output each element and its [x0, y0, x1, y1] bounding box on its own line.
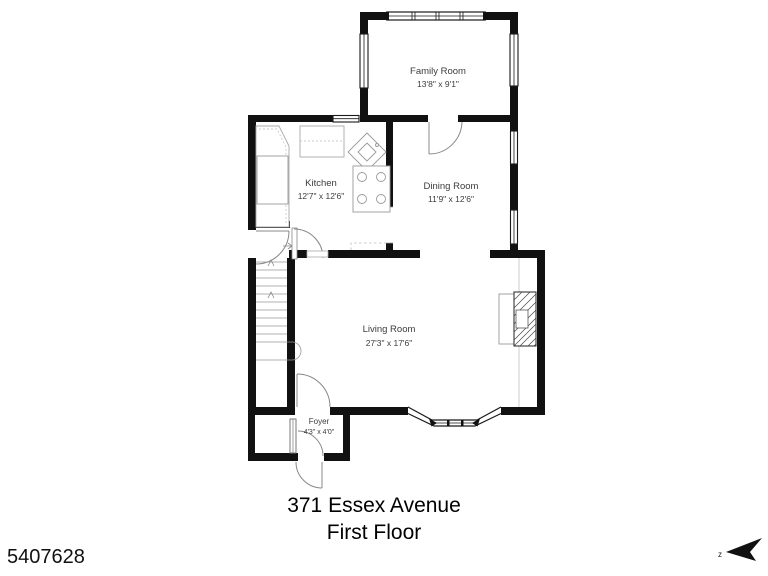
- family-room-left-window: [360, 34, 368, 88]
- family-room-label: Family Room: [410, 66, 466, 77]
- foyer-living-door: [297, 374, 330, 407]
- family-room-dims: 13'8" x 9'1": [417, 79, 459, 89]
- kitchen-cabinet: [300, 126, 344, 157]
- front-door: [296, 431, 323, 488]
- floor-line: First Floor: [0, 519, 748, 546]
- kitchen-window: [333, 116, 359, 123]
- kitchen-soffit-dashed: [351, 243, 386, 250]
- hall-opening: [307, 251, 328, 257]
- side-entry-door: [256, 231, 289, 264]
- fireplace: [499, 292, 536, 346]
- kitchen-range: [353, 166, 390, 212]
- family-room-right-window: [510, 34, 518, 86]
- listing-id: 5407628: [7, 546, 85, 569]
- kitchen-label: Kitchen: [305, 178, 337, 189]
- compass-letter: z: [718, 550, 722, 559]
- dining-room-door: [429, 122, 462, 154]
- kitchen-dims: 12'7" x 12'6": [298, 191, 345, 201]
- living-room-dims: 27'3" x 17'6": [366, 338, 413, 348]
- foyer-sidelight-window: [290, 419, 296, 453]
- dining-room-window-lower: [511, 210, 518, 244]
- floorplan-drawing: Family Room 13'8" x 9'1" Kitchen 12'7" x…: [0, 0, 768, 576]
- bay-window: [408, 405, 501, 427]
- fireplace-hearth: [499, 294, 515, 344]
- kitchen-corner-sink: [348, 133, 386, 171]
- dining-room-dims: 11'9" x 12'6": [428, 194, 474, 204]
- floorplan-page: Family Room 13'8" x 9'1" Kitchen 12'7" x…: [0, 0, 768, 576]
- family-room-window-band: [386, 12, 486, 21]
- address-line: 371 Essex Avenue: [0, 492, 748, 519]
- dining-room-window-upper: [511, 131, 518, 164]
- plan-title: 371 Essex Avenue First Floor: [0, 492, 748, 547]
- foyer-label: Foyer: [309, 417, 330, 426]
- windows: [290, 12, 518, 454]
- foyer-dims: 4'3" x 4'0": [304, 429, 335, 436]
- stair-direction-arrow: [268, 260, 274, 298]
- dining-room-label: Dining Room: [424, 181, 479, 192]
- kitchen-refrigerator: [257, 156, 288, 204]
- living-room-label: Living Room: [363, 324, 416, 335]
